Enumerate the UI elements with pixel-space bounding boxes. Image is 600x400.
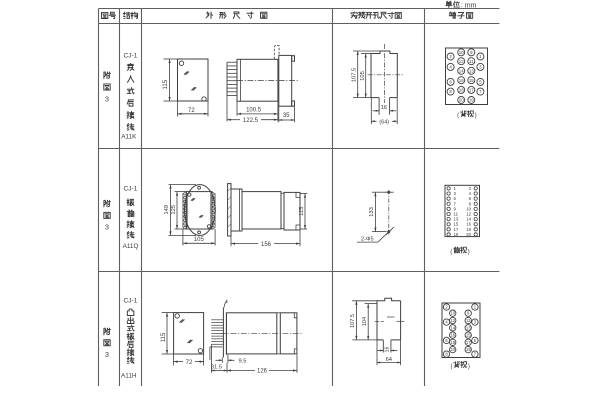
svg-text:115: 115 xyxy=(161,332,167,342)
svg-text:15: 15 xyxy=(466,333,471,338)
svg-text:CJ-1: CJ-1 xyxy=(124,53,138,60)
svg-text:13: 13 xyxy=(469,68,474,73)
svg-text:14: 14 xyxy=(459,68,464,73)
svg-text:): ) xyxy=(468,363,470,370)
svg-text:3: 3 xyxy=(105,225,109,232)
svg-text:115: 115 xyxy=(163,79,169,89)
svg-text:11: 11 xyxy=(466,318,471,323)
svg-text:156: 156 xyxy=(261,242,272,248)
svg-text:): ) xyxy=(468,248,470,255)
svg-text:12: 12 xyxy=(450,318,455,323)
svg-text:12: 12 xyxy=(459,59,464,64)
svg-text:11: 11 xyxy=(469,59,474,64)
svg-text:64: 64 xyxy=(386,357,393,363)
svg-text:A11K: A11K xyxy=(121,134,137,141)
svg-text:19: 19 xyxy=(466,347,471,352)
svg-text:10: 10 xyxy=(459,50,464,55)
svg-text:): ) xyxy=(475,112,477,119)
svg-text:3: 3 xyxy=(105,352,109,359)
svg-text:100.5: 100.5 xyxy=(246,108,262,114)
svg-text:14: 14 xyxy=(450,325,455,330)
svg-text:115: 115 xyxy=(299,207,305,216)
svg-text:105: 105 xyxy=(194,237,205,243)
svg-text:16: 16 xyxy=(450,333,455,338)
svg-text:20: 20 xyxy=(459,98,464,103)
svg-text:133: 133 xyxy=(369,207,375,217)
svg-text:17: 17 xyxy=(466,340,471,345)
svg-text:122.5: 122.5 xyxy=(243,118,259,124)
svg-text:104: 104 xyxy=(362,317,368,326)
svg-text:125: 125 xyxy=(171,205,177,215)
svg-text:9.5: 9.5 xyxy=(238,358,246,364)
svg-text:107.5: 107.5 xyxy=(351,68,357,83)
svg-text:13: 13 xyxy=(466,325,471,330)
svg-text:CJ-1: CJ-1 xyxy=(124,185,138,192)
svg-text:A11H: A11H xyxy=(121,373,137,380)
svg-text:2-Φ5: 2-Φ5 xyxy=(361,237,374,243)
svg-text:72: 72 xyxy=(188,108,195,114)
svg-text:CJ-1: CJ-1 xyxy=(124,298,138,305)
svg-text:107.5: 107.5 xyxy=(350,314,356,328)
svg-text:18: 18 xyxy=(450,340,455,345)
svg-text:149: 149 xyxy=(164,205,170,215)
svg-text:105: 105 xyxy=(360,71,366,81)
svg-text:35: 35 xyxy=(283,113,290,119)
svg-text:20: 20 xyxy=(450,347,455,352)
svg-text:3: 3 xyxy=(105,97,109,104)
svg-text:A11Q: A11Q xyxy=(123,243,139,250)
svg-text:17: 17 xyxy=(469,88,474,93)
svg-text:16: 16 xyxy=(385,347,391,353)
svg-text:16: 16 xyxy=(459,78,464,83)
svg-text:10: 10 xyxy=(450,311,455,316)
svg-text:72: 72 xyxy=(186,360,193,366)
svg-text:126: 126 xyxy=(257,369,268,375)
svg-text:20: 20 xyxy=(466,232,471,237)
svg-text:19: 19 xyxy=(469,98,474,103)
svg-text:31.5: 31.5 xyxy=(211,364,222,370)
svg-text:18: 18 xyxy=(459,88,464,93)
svg-text:(64): (64) xyxy=(379,119,389,125)
svg-text:15: 15 xyxy=(469,78,474,83)
svg-text:19: 19 xyxy=(454,232,459,237)
svg-text:16: 16 xyxy=(381,105,387,111)
